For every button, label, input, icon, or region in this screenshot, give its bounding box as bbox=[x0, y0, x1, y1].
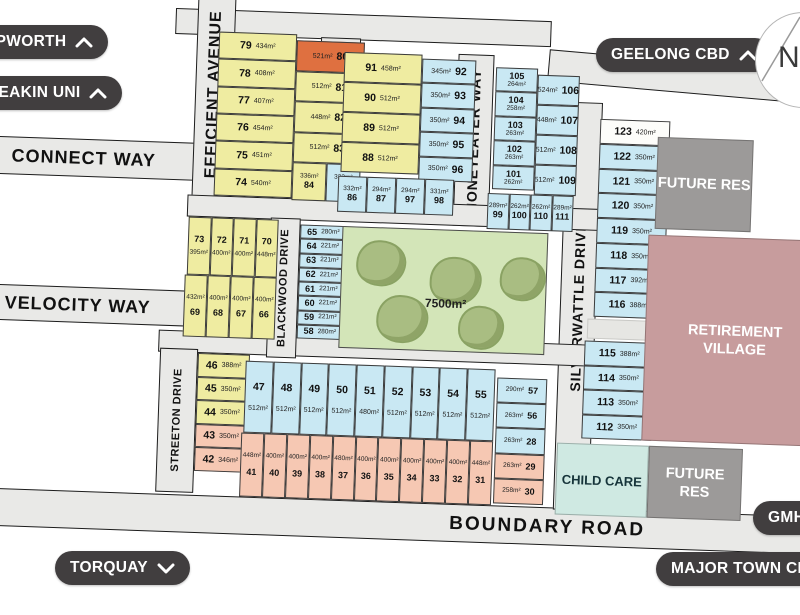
lot-number: 35 bbox=[384, 472, 394, 481]
lot-36[interactable]: 400m²36 bbox=[354, 437, 379, 502]
lot-number: 38 bbox=[315, 470, 325, 479]
lot-number: 113 bbox=[597, 397, 614, 408]
lot-area: 258m² bbox=[502, 488, 521, 495]
lot-area: 512m² bbox=[415, 410, 435, 418]
lot-area: 400m² bbox=[380, 458, 399, 465]
lot-33[interactable]: 400m²33 bbox=[422, 439, 447, 504]
lot-number: 106 bbox=[561, 85, 579, 96]
lot-area: 454m² bbox=[253, 125, 273, 133]
future-res-top-block: FUTURE RES bbox=[655, 137, 754, 232]
lot-70[interactable]: 70448m² bbox=[254, 219, 279, 278]
lot-number: 94 bbox=[453, 116, 465, 127]
lot-number: 86 bbox=[347, 193, 357, 202]
lot-108[interactable]: 512m²108 bbox=[535, 135, 578, 166]
lot-area: 221m² bbox=[320, 243, 339, 250]
street-label-boundary-road: BOUNDARY ROAD bbox=[449, 513, 646, 542]
lot-number: 53 bbox=[419, 388, 431, 399]
lot-area: 512m² bbox=[379, 125, 399, 133]
gmhba-button[interactable]: GMHBA bbox=[753, 501, 800, 535]
retirement-village-block: RETIREMENT VILLAGE bbox=[641, 235, 800, 447]
lot-area: 512m² bbox=[470, 412, 490, 420]
lot-91[interactable]: 91458m² bbox=[344, 52, 423, 85]
lot-number: 109 bbox=[558, 175, 576, 186]
major-town-centre-label: MAJOR TOWN CENTRE bbox=[671, 560, 800, 578]
lot-number: 79 bbox=[240, 41, 252, 52]
lot-area: 221m² bbox=[318, 315, 337, 322]
lot-number: 37 bbox=[338, 471, 348, 480]
lot-area: 407m² bbox=[254, 98, 274, 106]
tree-icon bbox=[376, 294, 430, 344]
lot-area: 521m² bbox=[313, 53, 333, 61]
lot-number: 76 bbox=[237, 123, 249, 134]
lot-area: 400m² bbox=[311, 455, 330, 462]
lot-34[interactable]: 400m²34 bbox=[399, 438, 424, 503]
lot-area: 350m² bbox=[430, 92, 450, 100]
torquay-label: TORQUAY bbox=[70, 559, 148, 577]
lot-number: 41 bbox=[246, 467, 256, 476]
future-res-bottom-label: FUTURE RES bbox=[659, 464, 730, 503]
lot-area: 350m² bbox=[635, 154, 655, 162]
lot-62[interactable]: 62221m² bbox=[299, 267, 345, 283]
lot-number: 68 bbox=[213, 308, 223, 317]
lot-number: 100 bbox=[512, 211, 527, 221]
lot-number: 36 bbox=[361, 471, 371, 480]
lot-group-66-69: 432m²69400m²68400m²67400m²66 bbox=[183, 274, 277, 339]
lot-number: 117 bbox=[609, 275, 626, 286]
lot-number: 77 bbox=[238, 95, 250, 106]
lot-number: 57 bbox=[528, 387, 538, 396]
lot-84[interactable]: 336m²84 bbox=[291, 162, 326, 201]
lot-number: 112 bbox=[596, 421, 613, 432]
child-care-block: CHILD CARE bbox=[555, 443, 649, 518]
lot-area: 480m² bbox=[334, 456, 353, 463]
lot-group-86-98: 332m²86294m²87294m²97331m²98 bbox=[337, 176, 454, 216]
lot-number: 114 bbox=[598, 372, 615, 383]
lot-number: 49 bbox=[308, 384, 320, 395]
lot-number: 39 bbox=[292, 469, 302, 478]
lot-number: 32 bbox=[452, 475, 462, 484]
lot-area: 400m² bbox=[212, 251, 231, 258]
lot-area: 448m² bbox=[243, 453, 262, 460]
lot-area: 512m² bbox=[309, 144, 329, 152]
lot-32[interactable]: 400m²32 bbox=[445, 440, 470, 505]
lot-area: 263m² bbox=[503, 463, 522, 470]
lot-number: 61 bbox=[305, 284, 315, 293]
road-streeton-drive: STREETON DRIVE bbox=[155, 348, 198, 493]
chevron-down-icon bbox=[157, 563, 175, 574]
epworth-button[interactable]: EPWORTH bbox=[0, 25, 108, 59]
lot-number: 74 bbox=[235, 177, 247, 188]
major-town-centre-button[interactable]: MAJOR TOWN CENTRE bbox=[656, 552, 800, 586]
lot-99[interactable]: 289m²99 bbox=[487, 193, 510, 230]
lot-88[interactable]: 88512m² bbox=[340, 142, 419, 175]
torquay-button[interactable]: TORQUAY bbox=[55, 551, 190, 585]
lot-66[interactable]: 400m²66 bbox=[252, 277, 277, 340]
lot-number: 50 bbox=[336, 385, 348, 396]
lot-area: 263m² bbox=[505, 412, 524, 419]
lot-41[interactable]: 448m²41 bbox=[239, 433, 264, 498]
lot-area: 345m² bbox=[431, 68, 451, 76]
child-care-label: CHILD CARE bbox=[562, 471, 643, 489]
geelong-cbd-label: GEELONG CBD bbox=[611, 46, 730, 64]
lot-number: 107 bbox=[560, 115, 578, 126]
lot-area: 400m² bbox=[449, 460, 468, 467]
lot-number: 89 bbox=[363, 122, 375, 133]
lot-area: 350m² bbox=[633, 203, 653, 211]
deakin-uni-button[interactable]: DEAKIN UNI bbox=[0, 76, 122, 110]
lot-area: 512m² bbox=[378, 155, 398, 163]
lot-area: 346m² bbox=[218, 456, 238, 464]
lot-number: 34 bbox=[406, 473, 416, 482]
lot-area: 350m² bbox=[617, 424, 637, 432]
lot-107[interactable]: 448m²107 bbox=[536, 105, 579, 136]
lot-54[interactable]: 54512m² bbox=[438, 367, 468, 440]
lot-101[interactable]: 101262m² bbox=[492, 165, 535, 191]
lot-area: 350m² bbox=[634, 178, 654, 186]
street-label-velocity-way: VELOCITY WAY bbox=[4, 292, 151, 318]
lot-number: 118 bbox=[610, 250, 627, 261]
epworth-label: EPWORTH bbox=[0, 33, 66, 51]
lot-77[interactable]: 77407m² bbox=[216, 86, 295, 116]
lot-area: 448m² bbox=[472, 461, 491, 468]
lot-area: 512m² bbox=[304, 406, 324, 414]
lot-number: 96 bbox=[451, 164, 463, 175]
lot-area: 221m² bbox=[320, 258, 339, 265]
lot-group-28-30-56-57: 290m²57263m²56263m²28263m²29258m²30 bbox=[493, 377, 547, 505]
lot-area: 458m² bbox=[381, 65, 401, 73]
lot-90[interactable]: 90512m² bbox=[343, 82, 422, 115]
lot-43[interactable]: 43350m² bbox=[195, 424, 248, 449]
lot-number: 40 bbox=[269, 468, 279, 477]
lot-56[interactable]: 263m²56 bbox=[496, 403, 547, 430]
lot-59[interactable]: 59221m² bbox=[297, 310, 343, 326]
lot-number: 121 bbox=[612, 176, 630, 187]
lot-63[interactable]: 63221m² bbox=[299, 253, 345, 269]
lot-number: 119 bbox=[611, 225, 628, 236]
lot-55[interactable]: 55512m² bbox=[465, 368, 495, 441]
lot-area: 400m² bbox=[357, 457, 376, 464]
lot-area: 512m² bbox=[331, 407, 351, 415]
lot-number: 70 bbox=[262, 237, 272, 246]
lot-30[interactable]: 258m²30 bbox=[493, 478, 544, 505]
lot-97[interactable]: 294m²97 bbox=[395, 178, 425, 215]
lot-number: 63 bbox=[306, 256, 316, 265]
lot-75[interactable]: 75451m² bbox=[214, 141, 293, 171]
lot-number: 51 bbox=[364, 386, 376, 397]
lot-68[interactable]: 400m²68 bbox=[206, 275, 231, 338]
lot-number: 88 bbox=[362, 152, 374, 163]
lot-number: 95 bbox=[452, 140, 464, 151]
lot-area: 400m² bbox=[232, 296, 251, 303]
lot-area: 221m² bbox=[319, 286, 338, 293]
lot-area: 408m² bbox=[255, 70, 275, 78]
lot-number: 28 bbox=[526, 437, 536, 446]
north-compass: N bbox=[755, 12, 800, 108]
lot-group-70-73: 73395m²72400m²71400m²70448m² bbox=[187, 217, 279, 278]
lot-area: 290m² bbox=[506, 387, 525, 394]
lot-number: 56 bbox=[527, 412, 537, 421]
lot-49[interactable]: 49512m² bbox=[299, 363, 329, 436]
chevron-up-icon bbox=[75, 37, 93, 48]
road-velocity-way: VELOCITY WAY bbox=[0, 284, 188, 327]
park-area-label: 7500m² bbox=[425, 296, 467, 311]
lot-number: 84 bbox=[304, 181, 314, 190]
lot-number: 97 bbox=[405, 195, 415, 204]
lot-number: 59 bbox=[304, 313, 314, 322]
lot-area: 400m² bbox=[426, 459, 445, 466]
lot-111[interactable]: 289m²111 bbox=[551, 195, 574, 232]
lot-64[interactable]: 64221m² bbox=[300, 239, 346, 255]
lot-group-31-41: 448m²41400m²40400m²39400m²38480m²37400m²… bbox=[239, 433, 493, 506]
lot-number: 116 bbox=[608, 300, 625, 311]
lot-area: 400m² bbox=[403, 458, 422, 465]
lot-number: 67 bbox=[236, 309, 246, 318]
lot-53[interactable]: 53512m² bbox=[410, 366, 440, 439]
lot-number: 110 bbox=[533, 212, 548, 222]
lot-area: 258m² bbox=[506, 106, 525, 113]
lot-48[interactable]: 48512m² bbox=[271, 362, 301, 435]
street-label-streeton-drive: STREETON DRIVE bbox=[169, 368, 185, 472]
lot-area: 540m² bbox=[251, 180, 271, 188]
future-res-bottom-block: FUTURE RES bbox=[647, 446, 743, 521]
street-label-connect-way: CONNECT WAY bbox=[11, 145, 156, 171]
lot-area: 400m² bbox=[255, 297, 274, 304]
lot-area: 512m² bbox=[442, 411, 462, 419]
lot-number: 72 bbox=[217, 236, 227, 245]
lot-69[interactable]: 432m²69 bbox=[183, 274, 208, 337]
lot-number: 108 bbox=[559, 145, 577, 156]
lot-number: 123 bbox=[614, 127, 632, 138]
lot-number: 46 bbox=[206, 360, 218, 371]
lot-area: 280m² bbox=[318, 329, 337, 336]
lot-area: 350m² bbox=[429, 141, 449, 149]
lot-area: 263m² bbox=[504, 437, 523, 444]
gmhba-label: GMHBA bbox=[768, 509, 800, 527]
lot-87[interactable]: 294m²87 bbox=[366, 177, 396, 214]
lot-number: 122 bbox=[613, 151, 631, 162]
lot-72[interactable]: 72400m² bbox=[209, 217, 234, 276]
lot-number: 90 bbox=[364, 92, 376, 103]
lot-58[interactable]: 58280m² bbox=[297, 324, 343, 340]
lot-37[interactable]: 480m²37 bbox=[331, 436, 356, 501]
lot-area: 388m² bbox=[620, 350, 640, 358]
lot-area: 400m² bbox=[288, 454, 307, 461]
lot-group-88-91: 91458m²90512m²89512m²88512m² bbox=[340, 52, 422, 175]
lot-number: 55 bbox=[475, 390, 487, 401]
lot-number: 54 bbox=[447, 389, 459, 400]
lot-number: 120 bbox=[612, 201, 630, 212]
lot-area: 264m² bbox=[507, 82, 526, 89]
lot-50[interactable]: 50512m² bbox=[327, 364, 357, 437]
lot-105[interactable]: 105264m² bbox=[495, 67, 538, 93]
lot-number: 44 bbox=[204, 407, 216, 418]
lot-number: 60 bbox=[304, 299, 314, 308]
lot-46[interactable]: 46388m² bbox=[197, 353, 250, 378]
lot-103[interactable]: 103263m² bbox=[494, 116, 537, 142]
lot-number: 58 bbox=[303, 327, 313, 336]
lot-group-92-96: 345m²92350m²93350m²94350m²95350m²96 bbox=[418, 59, 476, 183]
lot-group-106-109: 524m²106448m²107512m²108512m²109 bbox=[534, 75, 580, 196]
lot-51[interactable]: 51480m² bbox=[354, 365, 384, 438]
chevron-up-icon bbox=[89, 88, 107, 99]
lot-39[interactable]: 400m²39 bbox=[285, 434, 310, 499]
lot-number: 62 bbox=[305, 270, 315, 279]
lot-number: 78 bbox=[239, 68, 251, 79]
lot-number: 93 bbox=[454, 91, 466, 102]
lot-110[interactable]: 262m²110 bbox=[530, 194, 553, 231]
lot-area: 350m² bbox=[618, 399, 638, 407]
lot-89[interactable]: 89512m² bbox=[341, 112, 420, 145]
lot-area: 448m² bbox=[257, 252, 276, 259]
lot-area: 262m² bbox=[504, 179, 523, 186]
lot-area: 524m² bbox=[538, 86, 558, 94]
tree-icon bbox=[355, 239, 407, 287]
lot-area: 512m² bbox=[536, 146, 556, 154]
lot-93[interactable]: 350m²93 bbox=[421, 83, 476, 109]
compass-north-label: N bbox=[778, 41, 800, 75]
lot-35[interactable]: 400m²35 bbox=[376, 437, 401, 502]
lot-number: 71 bbox=[239, 237, 249, 246]
lot-71[interactable]: 71400m² bbox=[232, 218, 257, 277]
lot-42[interactable]: 42346m² bbox=[194, 447, 247, 472]
lot-number: 75 bbox=[236, 150, 248, 161]
lot-61[interactable]: 61221m² bbox=[298, 281, 344, 297]
tree-icon bbox=[457, 305, 505, 351]
lot-number: 87 bbox=[376, 194, 386, 203]
lot-number: 92 bbox=[455, 67, 467, 78]
lot-area: 448m² bbox=[310, 114, 330, 122]
lot-number: 91 bbox=[365, 62, 377, 73]
lot-number: 64 bbox=[306, 242, 316, 251]
lot-45[interactable]: 45350m² bbox=[196, 377, 249, 402]
lot-67[interactable]: 400m²67 bbox=[229, 276, 254, 339]
lot-number: 30 bbox=[524, 487, 534, 496]
lot-area: 388m² bbox=[221, 362, 241, 370]
lot-57[interactable]: 290m²57 bbox=[496, 377, 547, 404]
lot-109[interactable]: 512m²109 bbox=[534, 165, 577, 196]
lot-78[interactable]: 78408m² bbox=[217, 59, 296, 89]
lot-area: 263m² bbox=[506, 130, 525, 137]
lot-94[interactable]: 350m²94 bbox=[420, 107, 475, 133]
lot-106[interactable]: 524m²106 bbox=[537, 75, 580, 106]
lot-100[interactable]: 262m²100 bbox=[508, 194, 531, 231]
lot-40[interactable]: 400m²40 bbox=[262, 433, 287, 498]
lot-104[interactable]: 104258m² bbox=[494, 92, 537, 118]
lot-area: 512m² bbox=[380, 95, 400, 103]
lot-number: 99 bbox=[493, 210, 503, 219]
lot-group-101-105: 105264m²104258m²103263m²102263m²101262m² bbox=[492, 67, 538, 190]
lot-number: 73 bbox=[194, 235, 204, 244]
lot-area: 263m² bbox=[505, 155, 524, 162]
lot-area: 400m² bbox=[234, 251, 253, 258]
lot-number: 29 bbox=[525, 462, 535, 471]
lot-38[interactable]: 400m²38 bbox=[308, 435, 333, 500]
lot-area: 350m² bbox=[428, 165, 448, 173]
chevron-up-icon bbox=[739, 50, 757, 61]
lot-number: 66 bbox=[259, 310, 269, 319]
lot-number: 111 bbox=[555, 213, 569, 222]
lot-number: 33 bbox=[429, 474, 439, 483]
lot-area: 350m² bbox=[221, 386, 241, 394]
lot-44[interactable]: 44350m² bbox=[196, 400, 249, 425]
future-res-top-label: FUTURE RES bbox=[658, 174, 751, 195]
tree-icon bbox=[499, 256, 547, 302]
lot-area: 350m² bbox=[619, 375, 639, 383]
lot-74[interactable]: 74540m² bbox=[214, 168, 293, 198]
retirement-village-label: RETIREMENT VILLAGE bbox=[674, 321, 795, 361]
lot-area: 420m² bbox=[636, 129, 656, 137]
lot-area: 221m² bbox=[319, 272, 338, 279]
lot-60[interactable]: 60221m² bbox=[298, 296, 344, 312]
lot-number: 42 bbox=[202, 454, 214, 465]
lot-area: 434m² bbox=[256, 43, 276, 51]
lot-number: 115 bbox=[599, 348, 616, 359]
lot-area: 512m² bbox=[248, 405, 268, 413]
lot-area: 400m² bbox=[265, 454, 284, 461]
lot-65[interactable]: 65280m² bbox=[300, 224, 346, 240]
lot-area: 350m² bbox=[220, 409, 240, 417]
lot-area: 395m² bbox=[189, 250, 208, 257]
lot-52[interactable]: 52512m² bbox=[382, 366, 412, 439]
lot-98[interactable]: 331m²98 bbox=[424, 179, 454, 216]
deakin-uni-label: DEAKIN UNI bbox=[0, 84, 80, 102]
lot-number: 43 bbox=[203, 431, 215, 442]
lot-86[interactable]: 332m²86 bbox=[337, 176, 367, 213]
lot-number: 65 bbox=[307, 227, 317, 236]
lot-47[interactable]: 47512m² bbox=[243, 361, 273, 434]
lot-28[interactable]: 263m²28 bbox=[495, 428, 546, 455]
lot-76[interactable]: 76454m² bbox=[215, 113, 294, 143]
lot-area: 512m² bbox=[387, 409, 407, 417]
lot-area: 448m² bbox=[537, 116, 557, 124]
geelong-cbd-button[interactable]: GEELONG CBD bbox=[596, 38, 772, 72]
lot-area: 280m² bbox=[321, 229, 340, 236]
lot-number: 98 bbox=[434, 196, 444, 205]
park-reserve: 7500m² bbox=[338, 226, 548, 355]
lot-number: 69 bbox=[190, 307, 200, 316]
lot-95[interactable]: 350m²95 bbox=[419, 132, 474, 158]
lot-area: 221m² bbox=[318, 300, 337, 307]
lot-102[interactable]: 102263m² bbox=[493, 140, 536, 166]
lot-number: 52 bbox=[392, 387, 404, 398]
lot-31[interactable]: 448m²31 bbox=[468, 441, 493, 506]
road-connect-way: CONNECT WAY bbox=[0, 136, 207, 181]
lot-group-74-79: 79434m²78408m²77407m²76454m²75451m²74540… bbox=[214, 32, 298, 199]
lot-29[interactable]: 263m²29 bbox=[494, 453, 545, 480]
lot-area: 512m² bbox=[276, 405, 296, 413]
lot-group-47-55: 47512m²48512m²49512m²50512m²51480m²52512… bbox=[243, 361, 495, 442]
lot-number: 45 bbox=[205, 383, 217, 394]
lot-area: 400m² bbox=[209, 296, 228, 303]
lot-area: 512m² bbox=[312, 83, 332, 91]
lot-number: 103 bbox=[508, 120, 523, 130]
lot-area: 350m² bbox=[429, 116, 449, 124]
lot-area: 451m² bbox=[252, 152, 272, 160]
lot-group-99-111: 289m²99262m²100262m²110289m²111 bbox=[487, 193, 574, 232]
lot-area: 512m² bbox=[534, 176, 554, 184]
lot-number: 105 bbox=[509, 72, 524, 82]
lot-number: 47 bbox=[253, 382, 265, 393]
lot-number: 31 bbox=[475, 475, 485, 484]
lot-79[interactable]: 79434m² bbox=[218, 32, 297, 62]
lot-number: 101 bbox=[506, 169, 521, 179]
lot-92[interactable]: 345m²92 bbox=[422, 59, 477, 85]
lot-area: 432m² bbox=[186, 295, 205, 302]
lot-area: 480m² bbox=[359, 408, 379, 416]
lot-number: 48 bbox=[280, 383, 292, 394]
lot-73[interactable]: 73395m² bbox=[187, 217, 212, 276]
lot-area: 350m² bbox=[219, 433, 239, 441]
